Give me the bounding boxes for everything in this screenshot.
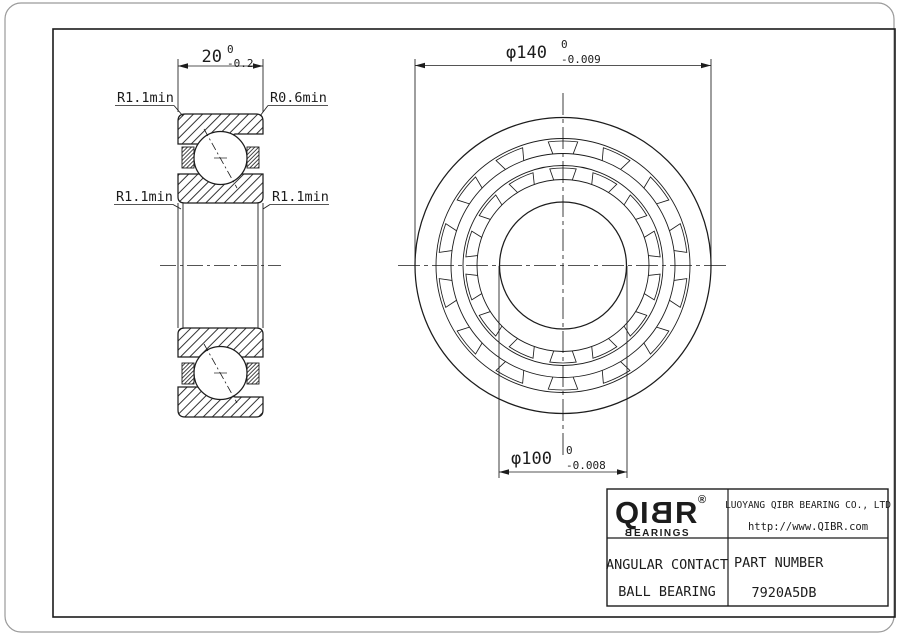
logo-letter-i: I <box>640 495 649 530</box>
cage-pocket <box>496 148 524 170</box>
company-url: http://www.QIBR.com <box>748 521 868 533</box>
arrowhead <box>253 63 263 68</box>
logo-letter-q: Q <box>615 495 639 530</box>
cage-pocket <box>624 195 647 220</box>
cage-pocket <box>624 312 647 337</box>
label-r-mid-right: R1.1min <box>272 189 329 205</box>
label-r-top-left: R1.1min <box>117 90 174 106</box>
arrowhead <box>617 469 627 474</box>
cage-section-left <box>182 147 194 168</box>
part-number-label: PART NUMBER <box>734 555 824 571</box>
logo-letter-r: R <box>675 495 697 530</box>
cage-pocket <box>509 339 534 359</box>
logo-letter-b-mirrored: B <box>651 495 673 530</box>
od-dim-upper: 0 <box>561 38 568 51</box>
od-dim-lower: -0.009 <box>561 53 601 66</box>
cage-pocket <box>592 173 617 193</box>
cage-pocket <box>592 339 617 359</box>
cage-pocket <box>496 362 524 384</box>
width-dim-lower: -0.2 <box>227 57 254 70</box>
bore-dim-upper: 0 <box>566 444 573 457</box>
product-type-line1: ANGULAR CONTACT <box>606 557 728 573</box>
product-type-line2: BALL BEARING <box>618 584 716 600</box>
arrowhead <box>701 63 711 68</box>
arrowhead <box>178 63 188 68</box>
front-view: φ140 0 -0.009 φ100 0 -0.008 <box>398 38 729 478</box>
leader-line <box>263 205 270 210</box>
cage-section-right <box>247 147 259 168</box>
width-dim-text: 20 <box>202 47 222 67</box>
logo-sub-b-mirrored: B <box>623 528 632 539</box>
company-name: LUOYANG QIBR BEARING CO., LTD <box>725 500 891 511</box>
drawing-canvas: 20 0 -0.2 R1.1min R0.6min R1.1min R1.1mi… <box>0 0 900 636</box>
label-r-top-right: R0.6min <box>270 90 327 106</box>
cage-pocket <box>479 312 502 337</box>
width-dimension: 20 0 -0.2 <box>178 43 263 112</box>
cage-section-right <box>247 363 259 384</box>
registered-mark: ® <box>698 494 706 506</box>
section-bottom <box>178 328 263 417</box>
cage-pocket <box>509 173 534 193</box>
bore-dim-text: φ100 <box>511 449 552 469</box>
bearing-drawing-page: 20 0 -0.2 R1.1min R0.6min R1.1min R1.1mi… <box>0 0 900 636</box>
leader-line <box>260 106 268 117</box>
bore-dim-lower: -0.008 <box>566 459 606 472</box>
part-number-value: 7920A5DB <box>751 585 816 601</box>
cage-pocket <box>479 195 502 220</box>
label-r-mid-left: R1.1min <box>116 189 173 205</box>
cage-pocket <box>602 148 630 170</box>
logo-subtext: EARINGS <box>634 528 690 539</box>
cage-pocket <box>602 362 630 384</box>
section-top <box>178 114 263 203</box>
arrowhead <box>499 469 509 474</box>
od-dim-text: φ140 <box>506 43 547 63</box>
leader-line <box>173 205 181 210</box>
title-block: Q I B R ® B EARINGS LUOYANG QIBR BEARING… <box>606 489 891 606</box>
arrowhead <box>415 63 425 68</box>
side-view: 20 0 -0.2 R1.1min R0.6min R1.1min R1.1mi… <box>114 43 329 417</box>
width-dim-upper: 0 <box>227 43 234 56</box>
cage-section-left <box>182 363 194 384</box>
